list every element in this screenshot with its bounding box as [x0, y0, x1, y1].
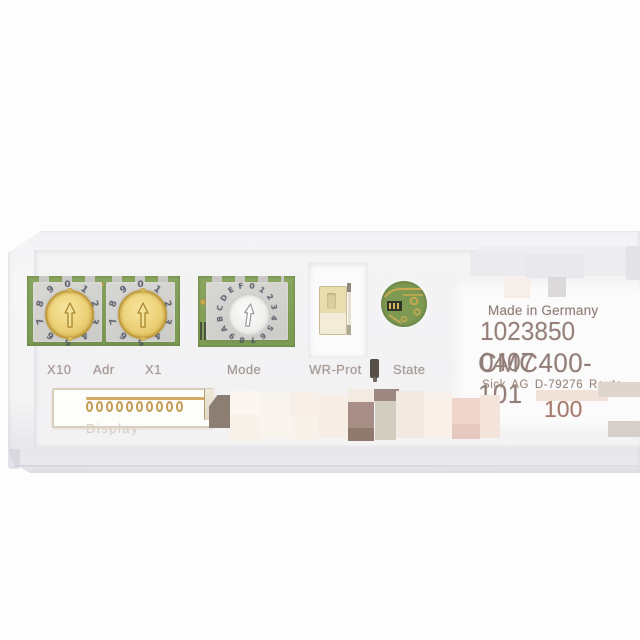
- label-wr-prot: WR-Prot: [309, 362, 362, 377]
- label-state: State: [393, 362, 425, 377]
- housing-bottom-edge: [14, 465, 640, 467]
- slide-switch-icon: [370, 359, 379, 378]
- dial-arrow-pointer: [237, 301, 260, 330]
- write-protect-slot: [327, 293, 336, 309]
- label-x1: X1: [145, 362, 162, 377]
- label-display: Display: [86, 421, 139, 436]
- connector-pin-row: [86, 401, 210, 415]
- partial-number-text: 100: [544, 396, 582, 423]
- connector-gold-bar: [86, 397, 206, 400]
- label-x10: X10: [47, 362, 71, 377]
- product-photo: 0123456789 0123456789 0123456789ABCDEF: [0, 0, 640, 640]
- dial-arrow-pointer: [59, 301, 81, 329]
- label-mode: Mode: [227, 362, 261, 377]
- dial-arrow-pointer: [132, 301, 154, 329]
- address-tens-rotary-dial: [45, 290, 94, 339]
- label-adr: Adr: [93, 362, 114, 377]
- connector-latch: [204, 389, 214, 420]
- pcb-traces: [381, 281, 427, 327]
- address-ones-rotary-dial: [118, 290, 167, 339]
- manufacturer-text: Sick AG D-79276 Reute: [482, 379, 623, 391]
- mode-rotary-dial: [227, 293, 271, 337]
- write-protect-mark-bottom: [347, 325, 351, 335]
- state-pcb-window: [381, 281, 427, 327]
- write-protect-mark-top: [347, 283, 351, 292]
